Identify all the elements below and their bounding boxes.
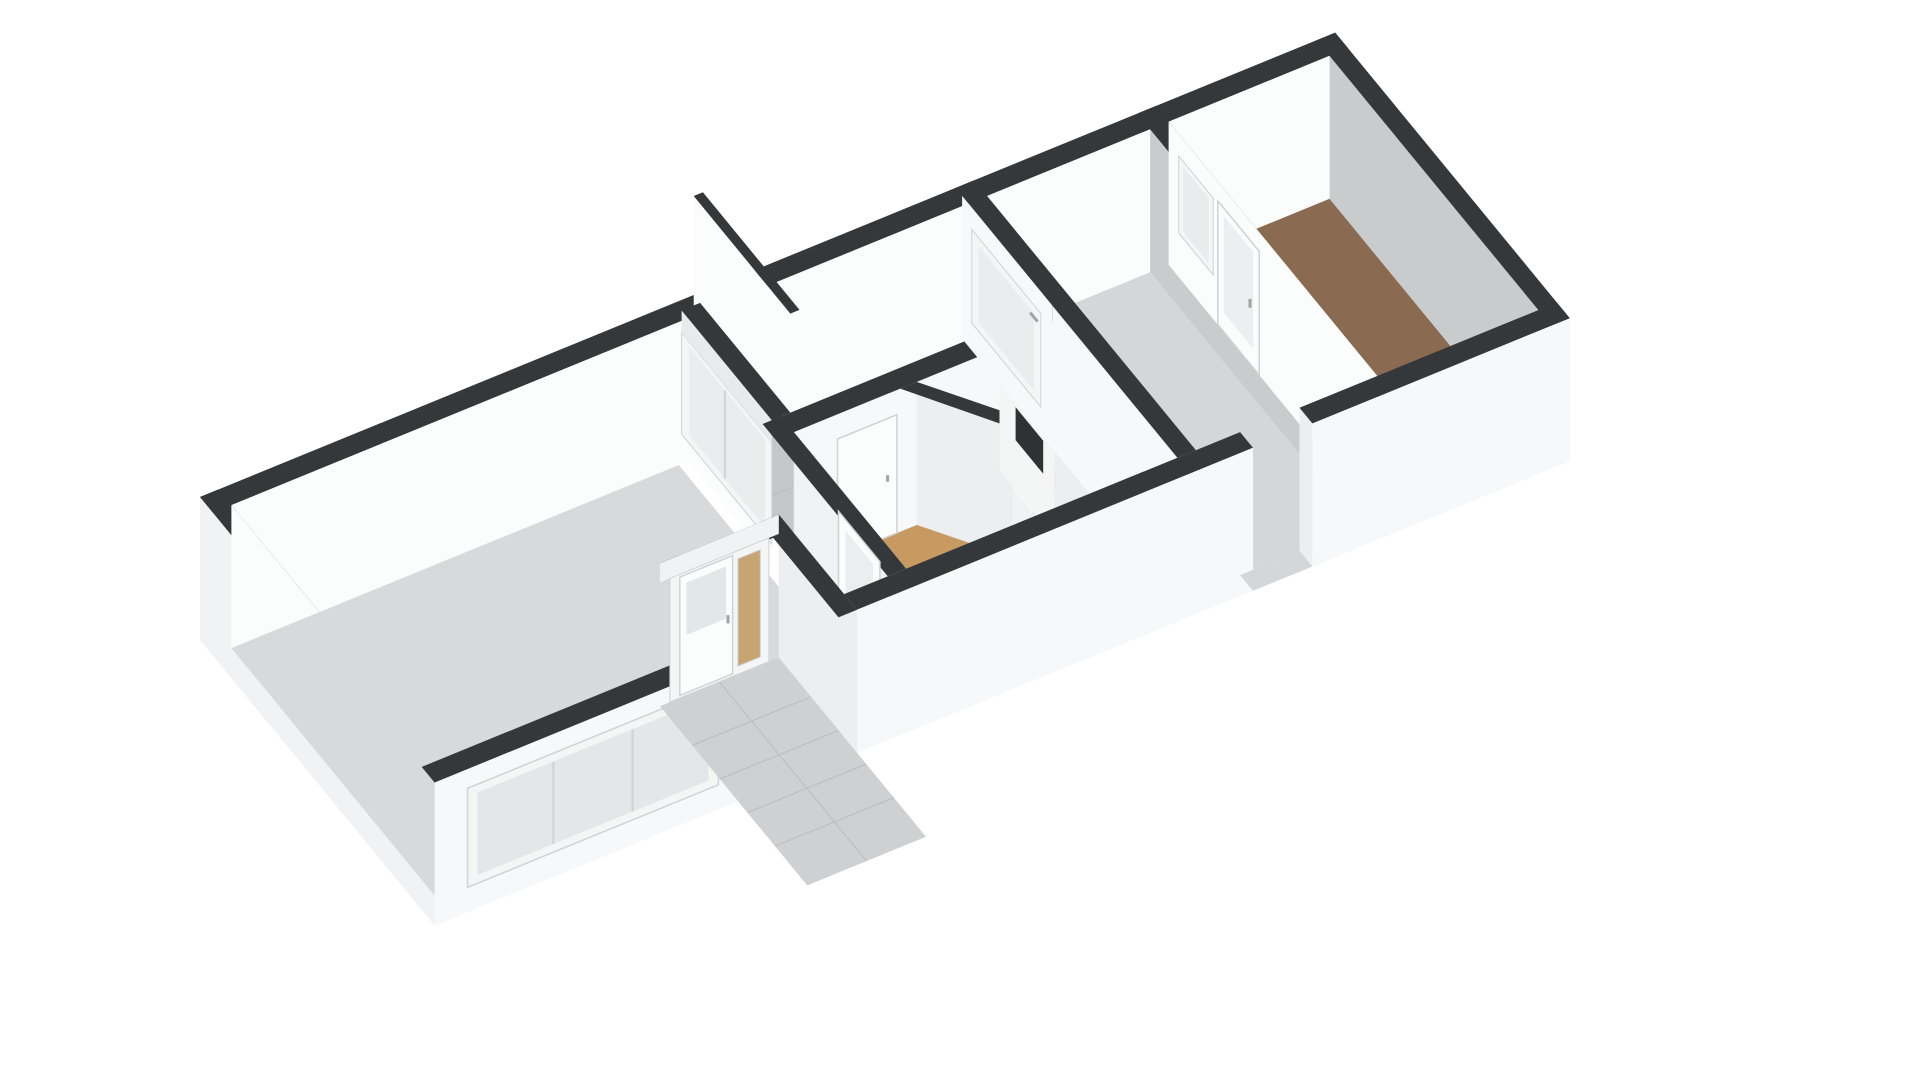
floorplan-3d-render [0, 0, 1920, 1080]
front-doorway-jamb [1300, 408, 1313, 567]
floorplan-3d-canvas [0, 0, 1920, 1080]
front-door-amber-sidelight [738, 550, 760, 666]
